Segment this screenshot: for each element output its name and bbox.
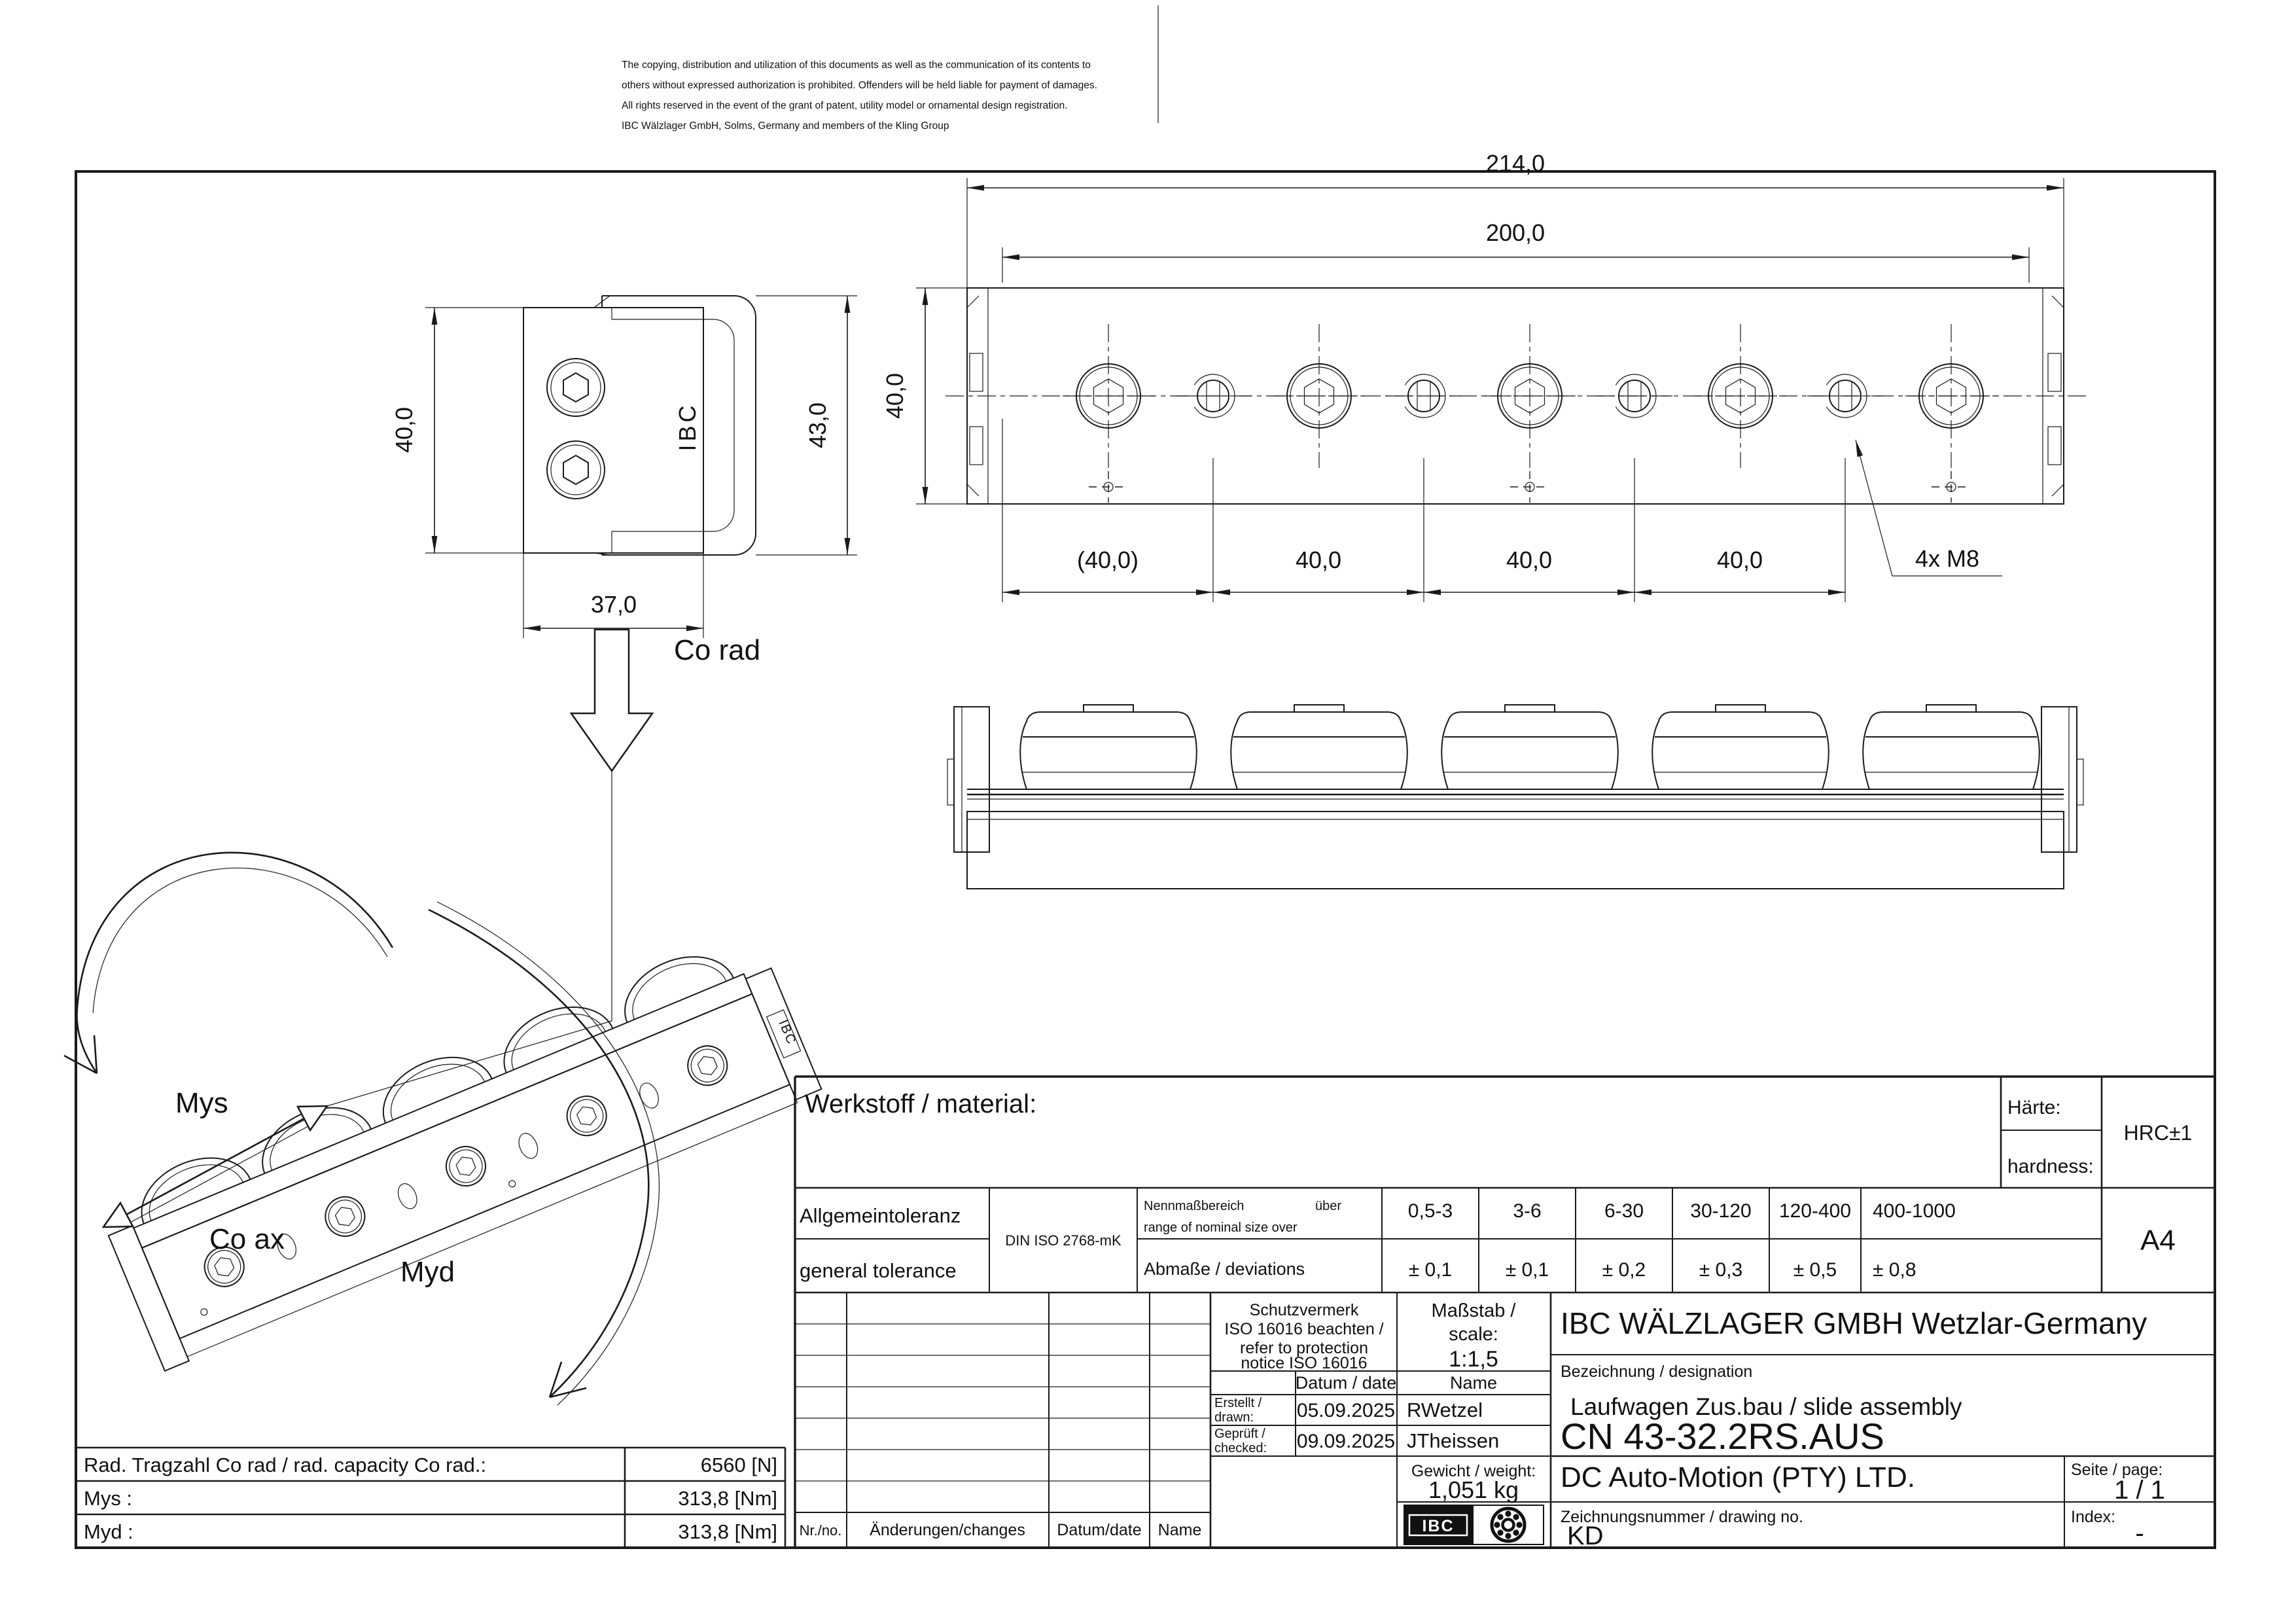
name-header: Name xyxy=(1450,1373,1497,1393)
tol-dev: ± 0,5 xyxy=(1793,1259,1837,1281)
dim-text: 214,0 xyxy=(1486,150,1545,177)
myd-label: Myd xyxy=(400,1256,455,1288)
revision-date-header: Datum/date xyxy=(1057,1521,1141,1539)
tol-range: 120-400 xyxy=(1779,1200,1851,1222)
hardness-label-en: hardness: xyxy=(2007,1156,2094,1177)
ibc-embossed-logo: IBC xyxy=(674,402,701,451)
capacity-row-label: Mys : xyxy=(84,1487,132,1510)
dim-text: 40,0 xyxy=(1296,546,1341,573)
disclaimer-line: All rights reserved in the event of the … xyxy=(622,100,1068,111)
revision-nr-header: Nr./no. xyxy=(800,1522,842,1539)
tol-dev: ± 0,1 xyxy=(1409,1259,1453,1281)
tolerance-standard: DIN ISO 2768-mK xyxy=(1005,1232,1122,1249)
thread-note-text: 4x M8 xyxy=(1915,545,1979,572)
scale-label-de: Maßstab / xyxy=(1432,1300,1517,1321)
checked-label-de: Geprüft / xyxy=(1214,1427,1265,1441)
drawn-date: 05.09.2025 xyxy=(1297,1400,1395,1421)
capacity-row-label: Rad. Tragzahl Co rad / rad. capacity Co … xyxy=(84,1454,486,1476)
co-rad-label: Co rad xyxy=(674,634,760,666)
dim-text: 43,0 xyxy=(804,402,831,448)
capacity-row-value: 313,8 [Nm] xyxy=(678,1487,777,1510)
range-label-over: über xyxy=(1315,1199,1341,1213)
engineering-drawing-page: The copying, distribution and utilizatio… xyxy=(0,0,2296,1623)
checked-name: JTheissen xyxy=(1407,1429,1499,1452)
dim-text: 40,0 xyxy=(1506,546,1552,573)
disclaimer-line: others without expressed authorization i… xyxy=(622,80,1097,91)
tolerance-label-de: Allgemeintoleranz xyxy=(800,1204,961,1227)
drawn-label-de: Erstellt / xyxy=(1214,1396,1262,1410)
ibc-logo-text: IBC xyxy=(1422,1517,1454,1535)
tol-dev: ± 0,2 xyxy=(1602,1259,1646,1281)
dim-text: 40,0 xyxy=(391,407,417,453)
mys-label: Mys xyxy=(175,1087,228,1119)
co-ax-label: Co ax xyxy=(209,1223,285,1255)
drawing-no-value: KD xyxy=(1567,1522,1604,1550)
dim-text: 40,0 xyxy=(881,373,908,419)
weight-value: 1,051 kg xyxy=(1428,1476,1519,1503)
company-name: IBC WÄLZLAGER GMBH Wetzlar-Germany xyxy=(1561,1306,2147,1340)
capacity-row-value: 6560 [N] xyxy=(701,1454,777,1476)
hardness-value: HRC±1 xyxy=(2124,1121,2193,1145)
capacity-row-value: 313,8 [Nm] xyxy=(678,1520,777,1543)
customer-name: DC Auto-Motion (PTY) LTD. xyxy=(1561,1461,1915,1493)
drawn-name: RWetzel xyxy=(1407,1399,1483,1421)
protection-note: Schutzvermerk xyxy=(1250,1301,1359,1319)
tol-dev: ± 0,1 xyxy=(1506,1259,1549,1281)
scale-value: 1:1,5 xyxy=(1449,1347,1498,1372)
disclaimer-line: IBC Wälzlager GmbH, Solms, Germany and m… xyxy=(622,120,949,132)
capacity-row-label: Myd : xyxy=(84,1520,133,1543)
tol-dev: ± 0,8 xyxy=(1873,1259,1916,1281)
dim-text: (40,0) xyxy=(1077,546,1139,573)
index-value: - xyxy=(2135,1519,2144,1548)
dim-text: 37,0 xyxy=(591,591,637,618)
tol-dev: ± 0,3 xyxy=(1699,1259,1743,1281)
checked-date: 09.09.2025 xyxy=(1297,1431,1395,1452)
protection-note: notice ISO 16016 xyxy=(1241,1354,1367,1372)
ibc-logo: IBC xyxy=(1404,1505,1544,1545)
page-value: 1 / 1 xyxy=(2114,1476,2165,1505)
checked-label-en: checked: xyxy=(1214,1441,1267,1455)
disclaimer-line: The copying, distribution and utilizatio… xyxy=(622,60,1091,71)
tol-range: 400-1000 xyxy=(1873,1200,1956,1222)
designation-label: Bezeichnung / designation xyxy=(1561,1363,1752,1381)
drawn-label-en: drawn: xyxy=(1214,1410,1254,1425)
range-label-en: range of nominal size over xyxy=(1144,1221,1298,1235)
part-number: CN 43-32.2RS.AUS xyxy=(1561,1416,1884,1457)
protection-note: ISO 16016 beachten / xyxy=(1224,1320,1383,1338)
format-label: A4 xyxy=(2140,1224,2176,1257)
dim-text: 200,0 xyxy=(1486,219,1545,246)
scale-label-en: scale: xyxy=(1449,1324,1498,1345)
tol-range: 30-120 xyxy=(1690,1200,1751,1222)
index-label: Index: xyxy=(2071,1508,2115,1526)
revision-name-header: Name xyxy=(1158,1521,1202,1539)
tol-range: 6-30 xyxy=(1604,1200,1644,1222)
dim-text: 40,0 xyxy=(1717,546,1763,573)
range-label-de: Nennmaßbereich xyxy=(1144,1199,1244,1213)
tol-range: 3-6 xyxy=(1513,1200,1541,1222)
material-label: Werkstoff / material: xyxy=(805,1090,1036,1118)
revision-changes-header: Änderungen/changes xyxy=(870,1521,1025,1539)
date-header: Datum / date xyxy=(1296,1373,1397,1393)
tol-range: 0,5-3 xyxy=(1408,1200,1453,1222)
hardness-label-de: Härte: xyxy=(2007,1097,2061,1118)
tolerance-label-en: general tolerance xyxy=(800,1259,957,1282)
deviation-label: Abmaße / deviations xyxy=(1144,1259,1305,1279)
